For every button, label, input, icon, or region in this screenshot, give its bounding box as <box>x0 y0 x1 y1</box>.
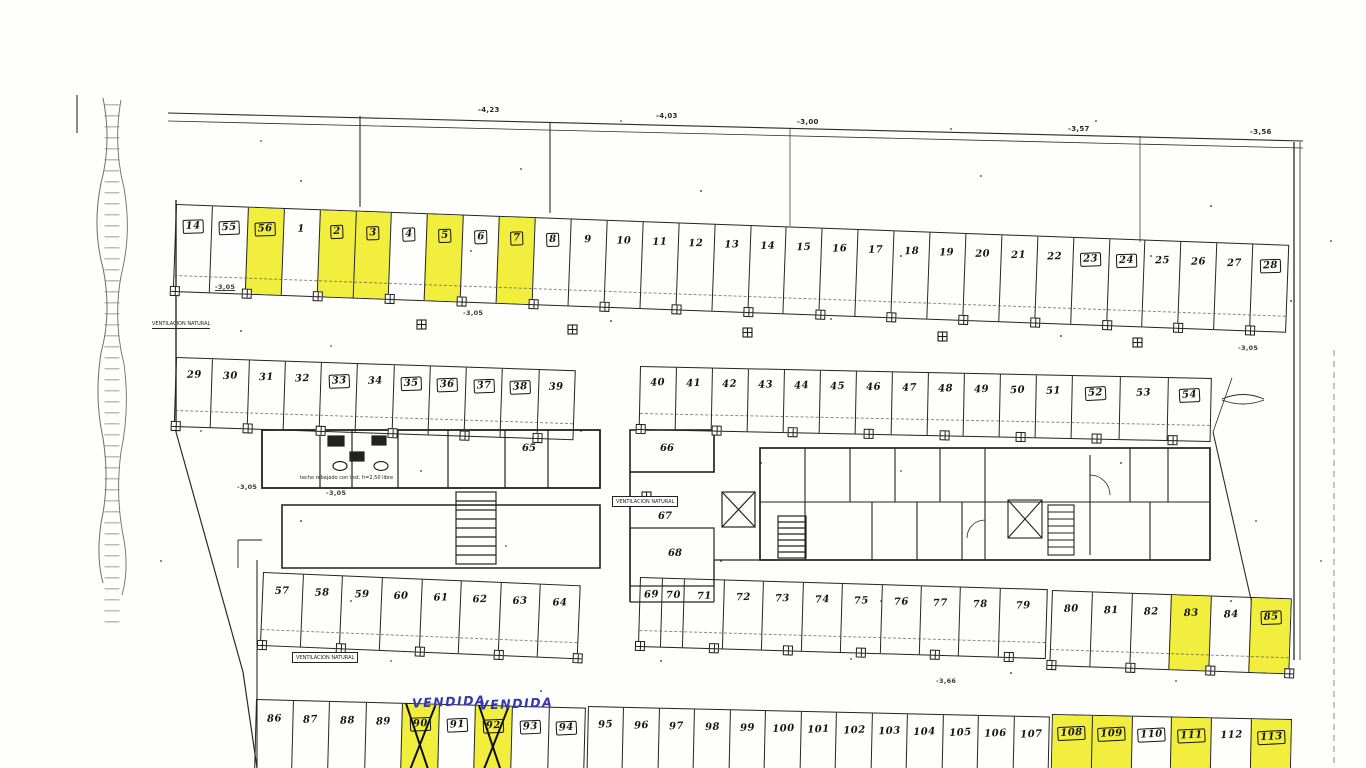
stall-number: 97 <box>669 721 684 733</box>
parking-stall-40: 40 <box>640 367 676 430</box>
stall-number: 42 <box>722 378 737 390</box>
column-marker <box>243 423 253 433</box>
ventilation-note: VENTILACION NATURAL <box>612 496 678 507</box>
parking-stall-13: 13 <box>711 225 750 312</box>
stall-number: 69 <box>643 589 658 601</box>
stall-number: 95 <box>598 719 613 731</box>
parking-stall-20: 20 <box>962 234 1001 321</box>
parking-stall-97: 97 <box>657 709 694 768</box>
stall-number: 5 <box>438 228 452 242</box>
stall-number: 36 <box>437 378 458 393</box>
stall-number: 22 <box>1047 251 1062 262</box>
stall-number: 43 <box>758 379 773 391</box>
column-marker <box>788 427 798 437</box>
parking-row-2-left: 2930313233343536373839 <box>174 357 576 440</box>
parking-stall-21: 21 <box>998 235 1037 322</box>
column-marker <box>1015 432 1025 442</box>
parking-stall-111: 111 <box>1170 718 1211 768</box>
parking-stall-9: 9 <box>568 219 607 306</box>
parking-stall-99: 99 <box>728 710 765 768</box>
parking-stall-35: 35 <box>391 365 430 434</box>
parking-row-bottom-middle: 9596979899100101102103104105106107 <box>586 706 1050 768</box>
stall-number: 32 <box>295 373 310 385</box>
stall-number: 17 <box>868 244 883 255</box>
stall-number: 38 <box>509 380 530 395</box>
parking-stall-57: 57 <box>261 573 303 647</box>
parking-stall-11: 11 <box>639 222 678 309</box>
stall-number: 48 <box>938 383 953 395</box>
stall-number: 29 <box>186 369 201 381</box>
stall-number: 87 <box>303 714 318 726</box>
parking-stall-52: 52 <box>1070 376 1119 439</box>
parking-stall-72: 72 <box>722 580 763 649</box>
stall-number: 27 <box>1227 257 1242 268</box>
stall-number: 13 <box>724 239 739 250</box>
parking-stall-10: 10 <box>603 221 642 308</box>
stall-number: 105 <box>949 727 972 739</box>
stall-number: 63 <box>512 595 527 606</box>
column-marker <box>712 426 722 436</box>
column-marker <box>1030 317 1040 327</box>
stall-number: 15 <box>796 242 811 253</box>
level-label: -4,03 <box>656 112 678 120</box>
parking-row-3-right: 808182838485 <box>1049 590 1292 674</box>
parking-stall-6: 6 <box>460 216 499 303</box>
stall-number: 64 <box>552 597 567 608</box>
parking-stall-42: 42 <box>711 369 748 432</box>
parking-stall-34: 34 <box>355 364 394 433</box>
column-marker <box>415 646 425 656</box>
ventilation-note: VENTILACION NATURAL <box>152 321 210 329</box>
parking-stall-39: 39 <box>536 370 575 439</box>
parking-stall-61: 61 <box>418 580 461 654</box>
parking-stall-1: 1 <box>280 209 319 296</box>
parking-stall-71: 71 <box>682 579 723 648</box>
parking-stall-112: 112 <box>1210 718 1251 768</box>
room-number-65: 65 <box>522 443 536 454</box>
parking-stall-5: 5 <box>424 214 463 301</box>
scan-noise <box>0 0 2 2</box>
stall-number: 2 <box>330 224 344 238</box>
parking-stall-47: 47 <box>890 372 927 435</box>
parking-stall-94: 94 <box>546 708 585 768</box>
stall-number: 55 <box>219 220 240 235</box>
parking-stall-60: 60 <box>379 578 422 652</box>
stall-number: 100 <box>772 723 795 735</box>
stall-number: 39 <box>549 381 564 393</box>
stall-number: 107 <box>1020 728 1043 740</box>
floor-level-label: -3,05 <box>326 489 346 497</box>
stall-number: 93 <box>519 719 541 734</box>
column-marker <box>743 307 753 317</box>
scan-artifact-strip <box>97 98 127 630</box>
stall-number: 11 <box>653 236 668 247</box>
column-marker <box>385 294 395 304</box>
stall-number: 7 <box>510 231 524 245</box>
parking-stall-98: 98 <box>693 709 730 768</box>
column-marker <box>940 430 950 440</box>
stall-number: 14 <box>760 240 775 251</box>
parking-stall-38: 38 <box>500 369 539 438</box>
parking-stall-103: 103 <box>870 713 907 768</box>
stall-number: 50 <box>1010 384 1025 396</box>
parking-stall-87: 87 <box>290 701 329 768</box>
column-marker <box>815 309 825 319</box>
stall-number: 73 <box>775 593 790 605</box>
parking-stall-32: 32 <box>282 362 321 431</box>
stall-number: 85 <box>1260 610 1281 625</box>
parking-stall-91: 91 <box>437 705 476 768</box>
floor-level-label: -3,05 <box>215 283 235 291</box>
parking-stall-28: 28 <box>1249 244 1288 331</box>
parking-stall-54: 54 <box>1167 378 1211 441</box>
stall-number: 51 <box>1046 385 1061 397</box>
column-marker <box>494 650 504 660</box>
parking-stall-78: 78 <box>958 588 999 657</box>
scanned-floor-plan: 1455561234567891011121314151617181920212… <box>0 0 1366 768</box>
floor-level-label: -3,05 <box>237 483 257 491</box>
column-marker <box>532 433 542 443</box>
column-marker <box>456 296 466 306</box>
column-marker <box>1046 660 1056 670</box>
level-label: -4,23 <box>478 106 500 114</box>
stall-number: 106 <box>984 728 1007 740</box>
column-marker <box>635 641 645 651</box>
stall-number: 47 <box>902 382 917 394</box>
parking-row-2-right: 404142434445464748495051525354 <box>639 366 1212 442</box>
stall-number: 113 <box>1257 730 1286 745</box>
column-marker <box>1102 320 1112 330</box>
parking-stall-101: 101 <box>799 712 836 768</box>
parking-stall-46: 46 <box>854 372 891 435</box>
stall-number: 34 <box>368 375 383 387</box>
stall-number: 86 <box>267 713 282 725</box>
stall-number: 98 <box>704 721 719 733</box>
stall-number: 103 <box>878 725 901 737</box>
parking-stall-43: 43 <box>747 369 784 432</box>
parking-stall-50: 50 <box>998 375 1035 438</box>
column-marker <box>1173 323 1183 333</box>
level-label: -3,56 <box>1250 128 1272 136</box>
ventilation-note: VENTILACION NATURAL <box>292 652 358 663</box>
column-marker <box>1004 652 1014 662</box>
column-marker <box>315 426 325 436</box>
stall-number: 44 <box>794 380 809 392</box>
stall-number: 72 <box>736 592 751 604</box>
stall-number: 49 <box>974 384 989 396</box>
column-marker <box>171 421 181 431</box>
stall-number: 31 <box>259 372 274 384</box>
parking-stall-37: 37 <box>464 368 503 437</box>
stall-number: 61 <box>433 592 448 603</box>
parking-stall-49: 49 <box>962 374 999 437</box>
parking-stall-12: 12 <box>675 223 714 310</box>
column-marker <box>170 286 180 296</box>
parking-stall-26: 26 <box>1178 242 1217 329</box>
stall-number: 70 <box>665 590 680 602</box>
stall-number: 108 <box>1057 726 1086 741</box>
parking-stall-45: 45 <box>818 371 855 434</box>
parking-stall-69: 69 <box>639 578 662 647</box>
stall-number: 112 <box>1220 729 1243 741</box>
stall-number: 3 <box>366 226 380 240</box>
parking-stall-90: 90 <box>400 704 439 768</box>
parking-stall-102: 102 <box>835 713 872 768</box>
stall-number: 53 <box>1136 387 1151 399</box>
stall-number: 99 <box>740 722 755 734</box>
stall-number: 102 <box>843 724 866 736</box>
stall-number: 80 <box>1064 603 1079 615</box>
parking-stall-64: 64 <box>537 585 580 659</box>
parking-stall-31: 31 <box>246 360 285 429</box>
column-marker <box>864 429 874 439</box>
parking-stall-53: 53 <box>1118 377 1167 440</box>
floor-level-label: -3,05 <box>1238 344 1258 352</box>
parking-stall-58: 58 <box>300 575 343 649</box>
stall-number: 77 <box>933 598 948 610</box>
parking-stall-105: 105 <box>941 715 978 768</box>
stall-number: 8 <box>546 232 560 246</box>
column-marker <box>930 650 940 660</box>
parking-stall-73: 73 <box>761 582 802 651</box>
column-marker <box>257 640 267 650</box>
column-marker <box>1125 663 1135 673</box>
stall-number: 59 <box>354 588 369 599</box>
parking-stall-59: 59 <box>339 576 382 650</box>
parking-stall-104: 104 <box>905 714 942 768</box>
stall-number: 56 <box>255 222 276 237</box>
parking-stall-84: 84 <box>1209 597 1251 672</box>
parking-stall-109: 109 <box>1090 716 1131 768</box>
parking-stall-82: 82 <box>1129 594 1171 669</box>
stall-number: 110 <box>1137 727 1166 742</box>
parking-stall-15: 15 <box>783 227 822 314</box>
parking-stall-17: 17 <box>855 230 894 317</box>
parking-stall-51: 51 <box>1034 375 1071 438</box>
building-core-centre <box>630 430 806 602</box>
parking-stall-92: 92 <box>473 706 512 768</box>
parking-row-top: 1455561234567891011121314151617181920212… <box>173 204 1289 333</box>
column-marker <box>671 304 681 314</box>
stall-number: 88 <box>340 715 355 727</box>
parking-stall-18: 18 <box>890 231 929 318</box>
parking-stall-100: 100 <box>764 711 801 768</box>
parking-stall-33: 33 <box>319 363 358 432</box>
stall-number: 21 <box>1011 249 1026 260</box>
column-marker <box>1205 665 1215 675</box>
parking-stall-30: 30 <box>210 359 249 428</box>
stall-number: 71 <box>696 590 711 602</box>
column-marker <box>887 312 897 322</box>
column-marker <box>600 302 610 312</box>
column-marker <box>636 424 646 434</box>
column-marker <box>388 428 398 438</box>
column-marker <box>709 643 719 653</box>
parking-stall-88: 88 <box>327 702 366 768</box>
stall-number: 84 <box>1223 609 1238 621</box>
parking-stall-27: 27 <box>1213 243 1252 330</box>
parking-stall-96: 96 <box>622 708 659 768</box>
stall-number: 94 <box>556 720 578 735</box>
stall-number: 109 <box>1097 727 1126 742</box>
parking-stall-44: 44 <box>783 370 820 433</box>
stall-number: 26 <box>1191 256 1206 267</box>
column-marker <box>460 430 470 440</box>
parking-stall-86: 86 <box>255 700 293 768</box>
column-marker <box>856 647 866 657</box>
column-marker <box>313 291 323 301</box>
stall-number: 10 <box>617 235 632 246</box>
building-core-left <box>238 430 600 568</box>
stall-number: 96 <box>634 720 649 732</box>
parking-stall-4: 4 <box>388 213 427 300</box>
column-marker <box>1167 435 1177 445</box>
stall-number: 54 <box>1179 388 1201 403</box>
stall-number: 45 <box>830 381 845 393</box>
parking-stall-25: 25 <box>1142 241 1181 328</box>
floor-level-label: -3,66 <box>936 677 956 685</box>
stall-number: 82 <box>1144 606 1159 618</box>
parking-stall-63: 63 <box>497 583 540 657</box>
parking-stall-23: 23 <box>1070 238 1109 325</box>
parking-stall-2: 2 <box>316 210 355 297</box>
stall-number: 62 <box>473 593 488 604</box>
stall-number: 81 <box>1104 605 1119 617</box>
room-number-66: 66 <box>660 443 674 454</box>
stall-number: 25 <box>1155 255 1170 266</box>
stall-number: 33 <box>328 374 349 389</box>
column-marker <box>1284 668 1294 678</box>
stall-number: 89 <box>376 716 391 728</box>
parking-stall-36: 36 <box>427 366 466 435</box>
stall-number: 41 <box>686 378 701 390</box>
column-marker <box>958 315 968 325</box>
parking-stall-83: 83 <box>1169 595 1211 670</box>
parking-stall-48: 48 <box>926 373 963 436</box>
parking-stall-106: 106 <box>976 716 1013 768</box>
parking-stall-95: 95 <box>587 707 623 768</box>
stall-number: 19 <box>940 247 955 258</box>
parking-row-bottom-right: 108109110111112113 <box>1051 714 1292 768</box>
stall-number: 83 <box>1184 607 1199 619</box>
stall-number: 23 <box>1080 252 1101 267</box>
building-core-right <box>760 448 1210 560</box>
parking-stall-24: 24 <box>1106 239 1145 326</box>
room-number-67: 67 <box>658 511 672 522</box>
stall-number: 40 <box>650 377 665 389</box>
parking-stall-29: 29 <box>175 358 213 427</box>
parking-stall-7: 7 <box>496 217 535 304</box>
stall-number: 111 <box>1177 728 1206 743</box>
stall-number: 37 <box>473 379 494 394</box>
parking-row-3-middle: 6970717273747576777879 <box>638 577 1048 659</box>
parking-stall-62: 62 <box>458 581 501 655</box>
ceiling-note: techo rebajado con inst. h=2,50 libre <box>300 475 393 481</box>
stall-number: 78 <box>972 599 987 611</box>
parking-stall-93: 93 <box>510 707 549 768</box>
parking-stall-108: 108 <box>1052 715 1092 768</box>
parking-row-3-left: 5758596061626364 <box>260 572 581 659</box>
column-marker <box>572 653 582 663</box>
parking-stall-110: 110 <box>1130 717 1171 768</box>
column-marker <box>241 288 251 298</box>
stall-number: 16 <box>832 243 847 254</box>
stall-number: 91 <box>446 717 468 732</box>
stall-number: 18 <box>904 245 919 256</box>
parking-stall-41: 41 <box>675 368 712 431</box>
stall-number: 6 <box>474 230 488 244</box>
parking-stall-16: 16 <box>819 229 858 316</box>
parking-stall-113: 113 <box>1250 719 1291 768</box>
stall-number: 28 <box>1259 259 1280 274</box>
stall-number: 104 <box>914 726 937 738</box>
stall-number: 20 <box>975 248 990 259</box>
parking-stall-85: 85 <box>1248 598 1290 673</box>
parking-stall-8: 8 <box>532 218 571 305</box>
stall-number: 58 <box>315 587 330 598</box>
stall-number: 24 <box>1116 253 1137 268</box>
parking-stall-77: 77 <box>919 586 960 655</box>
floor-level-label: -3,05 <box>463 309 483 317</box>
parking-stall-55: 55 <box>209 206 248 293</box>
stall-number: 9 <box>584 234 592 245</box>
parking-stall-80: 80 <box>1050 591 1091 666</box>
parking-stall-76: 76 <box>879 585 920 654</box>
parking-stall-79: 79 <box>998 589 1047 658</box>
parking-stall-89: 89 <box>364 703 403 768</box>
parking-stall-19: 19 <box>926 233 965 320</box>
stall-number: 46 <box>866 381 881 393</box>
stall-number: 101 <box>807 724 830 736</box>
parking-stall-75: 75 <box>840 584 881 653</box>
parking-stall-56: 56 <box>245 208 284 295</box>
stall-number: 60 <box>394 590 409 601</box>
parking-stall-22: 22 <box>1034 237 1073 324</box>
stall-number: 4 <box>402 227 416 241</box>
parking-stall-3: 3 <box>352 212 391 299</box>
column-marker <box>1245 325 1255 335</box>
level-label: -3,00 <box>797 118 819 126</box>
stall-number: 76 <box>893 596 908 608</box>
parking-stall-81: 81 <box>1089 592 1131 667</box>
stall-number: 12 <box>688 238 703 249</box>
stall-number: 14 <box>183 219 204 234</box>
stall-number: 30 <box>223 370 238 382</box>
parking-stall-107: 107 <box>1012 717 1049 768</box>
stall-number: 1 <box>297 223 305 234</box>
parking-stall-14: 14 <box>747 226 786 313</box>
stall-number: 74 <box>815 594 830 606</box>
stall-number: 52 <box>1085 386 1107 401</box>
stall-number: 35 <box>401 376 422 391</box>
stall-number: 57 <box>275 585 290 596</box>
column-marker <box>1091 433 1101 443</box>
parking-stall-70: 70 <box>660 579 684 648</box>
level-label: -3,57 <box>1068 125 1090 133</box>
room-number-68: 68 <box>668 548 682 559</box>
stall-number: 79 <box>1016 600 1031 612</box>
stall-number: 75 <box>854 595 869 607</box>
column-marker <box>528 299 538 309</box>
parking-stall-14: 14 <box>174 205 212 292</box>
parking-stall-74: 74 <box>801 583 842 652</box>
column-marker <box>782 645 792 655</box>
